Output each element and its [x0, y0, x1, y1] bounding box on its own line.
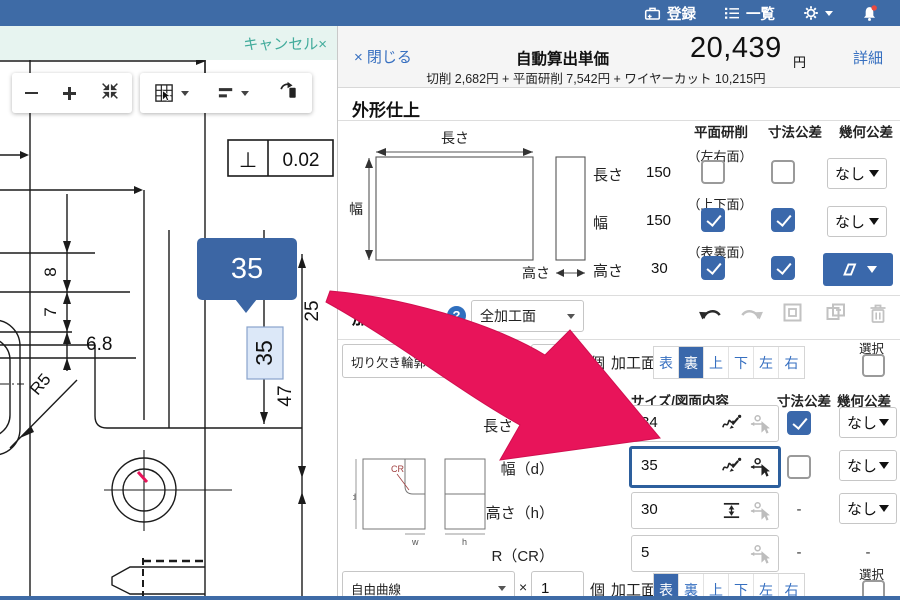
face-left-button[interactable]: 左 [754, 574, 779, 596]
diagram-d-label: d [353, 492, 356, 502]
divider [338, 295, 900, 296]
height-measure-icon[interactable] [721, 500, 742, 521]
zoom-out-button[interactable] [25, 92, 38, 95]
cancel-button[interactable]: キャンセル× [243, 33, 327, 54]
dim-35-highlighted[interactable]: 35 [247, 327, 283, 379]
tolerance-value: 0.02 [283, 150, 320, 171]
close-button[interactable]: × 閉じる [354, 46, 412, 67]
dimtol-checkbox-height[interactable] [771, 256, 795, 280]
register-button[interactable]: 登録 [644, 3, 696, 24]
unit-label: 個 [590, 579, 605, 596]
size-row-width-label: 幅（d） [454, 458, 554, 479]
unit-label: 個 [590, 352, 605, 373]
price-title: 自動算出単価 [516, 47, 609, 69]
zoom-in-button[interactable] [63, 87, 76, 100]
sketch-edit-icon[interactable] [721, 456, 742, 477]
select-caret-icon [867, 266, 877, 273]
grind-checkbox-length[interactable] [701, 160, 725, 184]
size-dimtol-none-r: - [787, 544, 811, 561]
pick-on-drawing-icon-active[interactable] [749, 456, 772, 478]
size-dimtol-checkbox-width[interactable] [787, 455, 811, 479]
layers-button[interactable] [217, 85, 249, 101]
size-row-r-label: R（CR） [454, 545, 554, 566]
size-geotol-select-height[interactable]: なし [839, 493, 897, 524]
estimate-panel: × 閉じる 自動算出単価 20,439 円 詳細 切削 2,682円 + 平面研… [337, 26, 900, 596]
face-segment-group-1: 表 裏 上 下 左 右 [653, 346, 805, 379]
tooltip-value: 35 [231, 253, 263, 286]
detail-link[interactable]: 詳細 [853, 47, 883, 68]
face-back-button[interactable]: 裏 [679, 574, 704, 596]
gear-icon [803, 5, 819, 21]
size-geotol-select-length[interactable]: なし [839, 407, 897, 438]
finish-row-length-label: 長さ [593, 164, 639, 185]
finish-row-height-value: 30 [651, 260, 668, 277]
grid-caret-icon [181, 91, 189, 96]
shape-section-title: 加工形状 [352, 304, 420, 329]
notifications-button[interactable] [861, 5, 878, 22]
dropdown-caret-icon [498, 359, 506, 364]
select-checkbox-1[interactable] [862, 354, 885, 377]
minus-icon [25, 92, 38, 95]
finish-row-width-label: 幅 [593, 212, 608, 233]
view-mode-toolbar [140, 73, 312, 113]
shape-count-input-2[interactable]: 1 [531, 571, 584, 596]
list-icon [724, 6, 740, 20]
trash-icon[interactable] [868, 303, 888, 324]
face-bottom-button[interactable]: 下 [729, 574, 754, 596]
geotol-select-length[interactable]: なし [827, 158, 887, 189]
diagram-w-label: w [411, 537, 419, 547]
select-checkbox-2[interactable] [862, 580, 885, 596]
select-all-icon[interactable] [782, 302, 804, 324]
grind-checkbox-height[interactable] [701, 256, 725, 280]
plus-icon [63, 87, 76, 100]
face-left-button[interactable]: 左 [754, 347, 779, 378]
list-button[interactable]: 一覧 [724, 3, 775, 24]
layers-caret-icon [241, 91, 249, 96]
briefcase-plus-icon [644, 6, 661, 21]
price-header: × 閉じる 自動算出単価 20,439 円 詳細 切削 2,682円 + 平面研… [338, 26, 900, 88]
undo-icon[interactable] [698, 304, 724, 324]
size-row-height-label: 高さ（h） [454, 502, 554, 523]
diagram-cr-label: CR [391, 464, 404, 474]
size-dimtol-checkbox-length[interactable] [787, 411, 811, 435]
face-top-button[interactable]: 上 [704, 347, 729, 378]
perpendicularity-symbol: ⊥ [239, 149, 257, 172]
bell-icon [861, 5, 878, 22]
fit-view-button[interactable] [101, 82, 119, 105]
price-value: 20,439 [690, 32, 782, 65]
finish-section-title: 外形仕上 [352, 96, 420, 121]
times-sign: × [519, 579, 527, 595]
help-icon[interactable]: ? [447, 306, 466, 325]
size-geotol-select-width[interactable]: なし [839, 450, 897, 481]
stock-diagram: 長さ 幅 高さ [348, 126, 608, 291]
app-window: 登録 一覧 [0, 0, 900, 600]
col-grind: 平面研削 [681, 121, 761, 141]
select-caret-icon [869, 170, 879, 177]
size-dimtol-none-height: - [787, 501, 811, 518]
dimtol-checkbox-length[interactable] [771, 160, 795, 184]
face-front-button[interactable]: 表 [654, 347, 679, 378]
svg-text:35: 35 [251, 340, 277, 366]
face-top-button[interactable]: 上 [704, 574, 729, 596]
pick-on-drawing-icon[interactable] [749, 543, 772, 565]
geotol-select-height-parallelism[interactable] [823, 253, 893, 286]
dim-8: 8 [41, 267, 60, 276]
cancel-banner: キャンセル× [0, 26, 337, 60]
size-input-length[interactable]: 34 [631, 405, 779, 442]
cad-drawing-pane: ⊥ 0.02 8 7 6.8 R5 35 25 47 キャンセル× [0, 26, 337, 596]
size-row-length-label: 長さ（w） [454, 415, 554, 436]
parallelism-icon [840, 263, 859, 276]
pick-on-drawing-icon[interactable] [749, 413, 772, 435]
select-caret-icon [879, 462, 889, 469]
bottom-bar [0, 596, 900, 600]
geotol-select-width[interactable]: なし [827, 206, 887, 237]
face-back-button[interactable]: 裏 [679, 347, 704, 378]
dim-47: 47 [275, 385, 296, 406]
list-label: 一覧 [746, 3, 775, 24]
duplicate-icon[interactable] [825, 302, 847, 324]
col-geo-tol: 幾何公差 [826, 121, 900, 141]
sketch-edit-icon[interactable] [721, 413, 742, 434]
grid-cursor-icon [154, 83, 175, 104]
size-input-r[interactable]: 5 [631, 535, 779, 572]
red-mark [138, 472, 147, 482]
dimension-tooltip: 35 [197, 238, 297, 300]
finish-row-length-value: 150 [646, 164, 671, 181]
face-scope-dropdown[interactable]: 全加工面 [471, 300, 584, 332]
face-segment-group-2: 表 裏 上 下 左 右 [653, 573, 805, 596]
times-sign: × [519, 352, 527, 368]
tolerance-frame: ⊥ 0.02 [228, 140, 333, 176]
finish-row-width-value: 150 [646, 212, 671, 229]
register-label: 登録 [667, 3, 696, 24]
select-caret-icon [879, 505, 889, 512]
dim-7: 7 [41, 307, 60, 316]
zoom-toolbar [12, 73, 132, 113]
col-dim-tol: 寸法公差 [755, 121, 835, 141]
dimtol-checkbox-width[interactable] [771, 208, 795, 232]
dropdown-caret-icon [567, 314, 575, 319]
divider [338, 339, 900, 340]
notification-dot [871, 5, 876, 10]
face-label: 加工面 [611, 579, 656, 596]
rotate-view-button[interactable] [278, 81, 298, 105]
pick-on-drawing-icon[interactable] [749, 500, 772, 522]
compress-icon [101, 82, 119, 100]
face-front-button[interactable]: 表 [654, 574, 679, 596]
diagram-width-label: 幅 [349, 201, 363, 217]
shape-count-input-1[interactable]: 4 [531, 344, 584, 378]
shape-type-dropdown-2[interactable]: 自由曲線 [342, 571, 515, 596]
notch-diagram: CR d w h [353, 434, 498, 549]
size-geotol-none-r: - [856, 544, 880, 561]
rotate-icon [278, 81, 298, 100]
shape-type-dropdown-1[interactable]: 切り欠き輪郭（通シ） [342, 344, 515, 378]
face-bottom-button[interactable]: 下 [729, 347, 754, 378]
diagram-height-label: 高さ [522, 265, 550, 281]
face-label: 加工面 [611, 352, 656, 373]
top-navigation-bar: 登録 一覧 [0, 0, 900, 26]
settings-caret-icon [825, 11, 833, 16]
size-input-width-highlighted[interactable]: 35 [629, 446, 781, 488]
dim-6-8: 6.8 [86, 334, 112, 355]
dropdown-caret-icon [498, 586, 506, 591]
layers-icon [217, 85, 235, 101]
select-caret-icon [869, 218, 879, 225]
dim-25: 25 [302, 300, 323, 321]
face-right-button[interactable]: 右 [779, 574, 804, 596]
grid-select-button[interactable] [154, 83, 189, 104]
finish-row-height-label: 高さ [593, 260, 623, 281]
face-right-button[interactable]: 右 [779, 347, 804, 378]
size-input-height[interactable]: 30 [631, 492, 779, 529]
diagram-length-label: 長さ [441, 130, 469, 146]
grind-checkbox-width[interactable] [701, 208, 725, 232]
redo-icon[interactable] [738, 304, 764, 324]
price-breakdown: 切削 2,682円 + 平面研削 7,542円 + ワイヤーカット 10,215… [361, 68, 831, 87]
select-caret-icon [879, 419, 889, 426]
settings-menu-button[interactable] [803, 5, 833, 21]
